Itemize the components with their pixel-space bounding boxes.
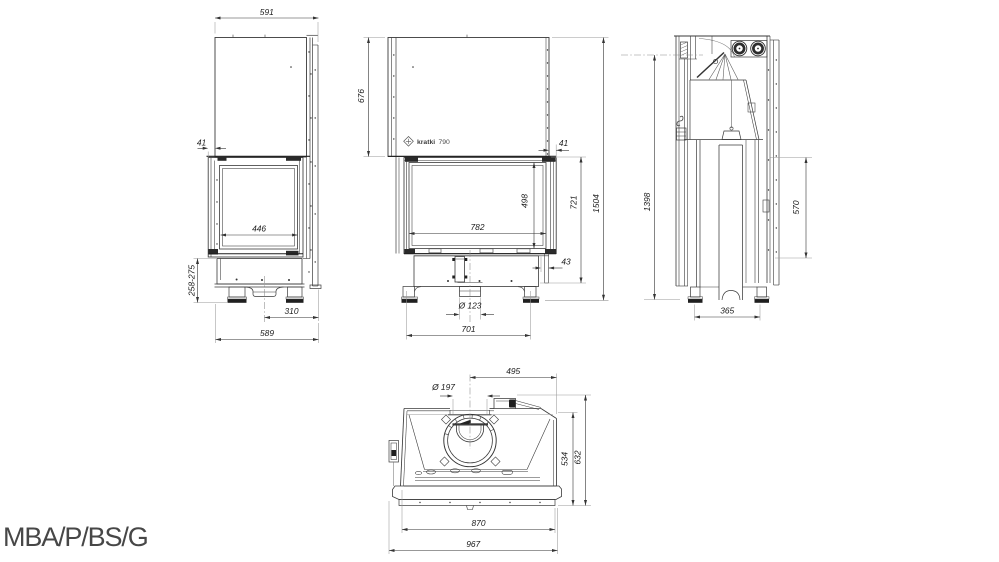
svg-text:kratki: kratki xyxy=(417,139,435,146)
svg-text:43: 43 xyxy=(561,257,571,267)
svg-text:589: 589 xyxy=(260,328,274,338)
svg-text:1398: 1398 xyxy=(642,192,652,211)
svg-text:495: 495 xyxy=(506,366,520,376)
svg-text:782: 782 xyxy=(471,222,485,232)
svg-text:1504: 1504 xyxy=(591,194,601,213)
svg-text:790: 790 xyxy=(439,139,451,146)
svg-text:632: 632 xyxy=(573,450,583,464)
svg-text:365: 365 xyxy=(720,306,734,316)
svg-text:498: 498 xyxy=(520,194,530,208)
svg-text:41: 41 xyxy=(197,137,206,147)
svg-text:701: 701 xyxy=(462,324,476,334)
svg-text:721: 721 xyxy=(569,196,579,210)
svg-text:Ø 123: Ø 123 xyxy=(458,301,482,311)
svg-text:MBA/P/BS/G: MBA/P/BS/G xyxy=(3,522,148,552)
svg-text:676: 676 xyxy=(356,89,366,103)
svg-text:870: 870 xyxy=(472,518,486,528)
svg-text:41: 41 xyxy=(559,138,568,148)
svg-text:570: 570 xyxy=(791,200,801,214)
svg-text:446: 446 xyxy=(252,224,266,234)
svg-text:258-275: 258-275 xyxy=(187,265,197,297)
svg-text:967: 967 xyxy=(466,539,480,549)
svg-text:591: 591 xyxy=(260,7,274,17)
svg-text:534: 534 xyxy=(560,452,570,466)
svg-text:310: 310 xyxy=(285,306,299,316)
svg-text:Ø 197: Ø 197 xyxy=(431,382,455,392)
